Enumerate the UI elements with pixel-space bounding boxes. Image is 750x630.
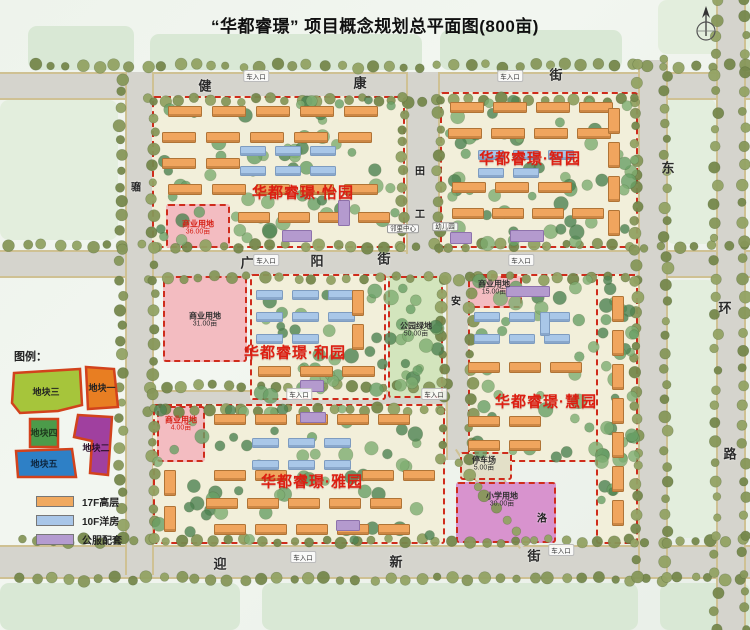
- entrance-tag: 车入口: [421, 388, 447, 400]
- street-label-田工: 工: [415, 206, 425, 221]
- street-label-广阳街: 街: [377, 249, 390, 268]
- street-label-安: 安: [451, 293, 461, 308]
- land-use-label: 商业用地36.00亩: [182, 219, 214, 236]
- legend-parcel-label: 地块二: [82, 442, 109, 453]
- street-label-骝: 骝: [131, 179, 141, 194]
- land-use-label: 公园绿地50.00亩: [400, 321, 432, 338]
- legend-label: 10F洋房: [82, 513, 119, 528]
- district-label: 华都睿璟·智园: [479, 148, 581, 169]
- entrance-tag: 车入口: [253, 254, 279, 266]
- land-use-label: 商业用地31.00亩: [189, 311, 221, 328]
- entrance-tag: 车入口: [548, 544, 574, 556]
- land-use-label: 邻里中心: [387, 224, 419, 233]
- street-label-广阳街: 广: [240, 253, 253, 272]
- legend-parcel-label: 地块一: [88, 382, 115, 393]
- legend-parcel-label: 地块三: [32, 386, 59, 397]
- map-legend-shapes: 地块三 地块一 地块四 地块二 地块五: [6, 365, 122, 479]
- street-label-迎新街: 迎: [213, 554, 226, 573]
- map-legend-inset: 图例： 地块三 地块一 地块四 地块二 地块五: [6, 348, 122, 476]
- page-title: “华都睿璟” 项目概念规划总平面图(800亩): [211, 12, 539, 37]
- legend-label: 17F高层: [82, 494, 119, 509]
- district-label: 华都睿璟·雅园: [261, 471, 363, 492]
- legend-swatch-17f: [36, 496, 74, 507]
- legend-row: 10F洋房: [36, 511, 122, 530]
- district-label: 华都睿璟·和园: [244, 342, 346, 363]
- building-type-legend: 17F高层 10F洋房 公服配套: [36, 492, 122, 549]
- entrance-tag: 车入口: [508, 254, 534, 266]
- land-use-label: 商业用地4.00亩: [165, 415, 197, 432]
- district-label: 华都睿璟·慧园: [495, 391, 597, 412]
- land-use-label: 商业用地15.00亩: [478, 279, 510, 296]
- entrance-tag: 车入口: [497, 70, 523, 82]
- street-label-洛: 洛: [537, 510, 547, 525]
- district-label: 华都睿璟·怡园: [252, 182, 354, 203]
- legend-parcel-label: 地块五: [30, 458, 57, 469]
- entrance-tag: 车入口: [243, 70, 269, 82]
- street-label-健康街: 健: [198, 76, 211, 95]
- site-plan-map[interactable]: 健康街广阳街迎新街东环路骝田工安洛华都睿璟·怡园华都睿璟·智园华都睿璟·和园华都…: [0, 0, 750, 630]
- legend-swatch-public: [36, 534, 74, 545]
- entrance-tag: 车入口: [290, 551, 316, 563]
- entrance-tag: 车入口: [286, 388, 312, 400]
- north-compass-icon: [692, 4, 720, 46]
- legend-row: 公服配套: [36, 530, 122, 549]
- street-label-迎新街: 街: [527, 546, 540, 565]
- legend-row: 17F高层: [36, 492, 122, 511]
- street-label-健康街: 街: [549, 65, 562, 84]
- street-label-迎新街: 新: [389, 552, 402, 571]
- street-label-健康街: 康: [353, 73, 366, 92]
- map-legend-title: 图例：: [14, 348, 122, 364]
- legend-swatch-10f: [36, 515, 74, 526]
- legend-parcel-label: 地块四: [30, 427, 57, 438]
- land-use-label: 幼儿园: [432, 222, 458, 231]
- street-label-东环路: 东: [661, 158, 674, 177]
- street-label-东环路: 路: [723, 444, 736, 463]
- street-label-广阳街: 阳: [310, 251, 323, 270]
- land-use-label: 小学用地30.00亩: [486, 491, 518, 508]
- street-label-东环路: 环: [718, 298, 731, 317]
- street-label-田工: 田: [415, 163, 425, 178]
- land-use-label: 停车场5.00亩: [472, 455, 496, 472]
- legend-label: 公服配套: [82, 532, 122, 547]
